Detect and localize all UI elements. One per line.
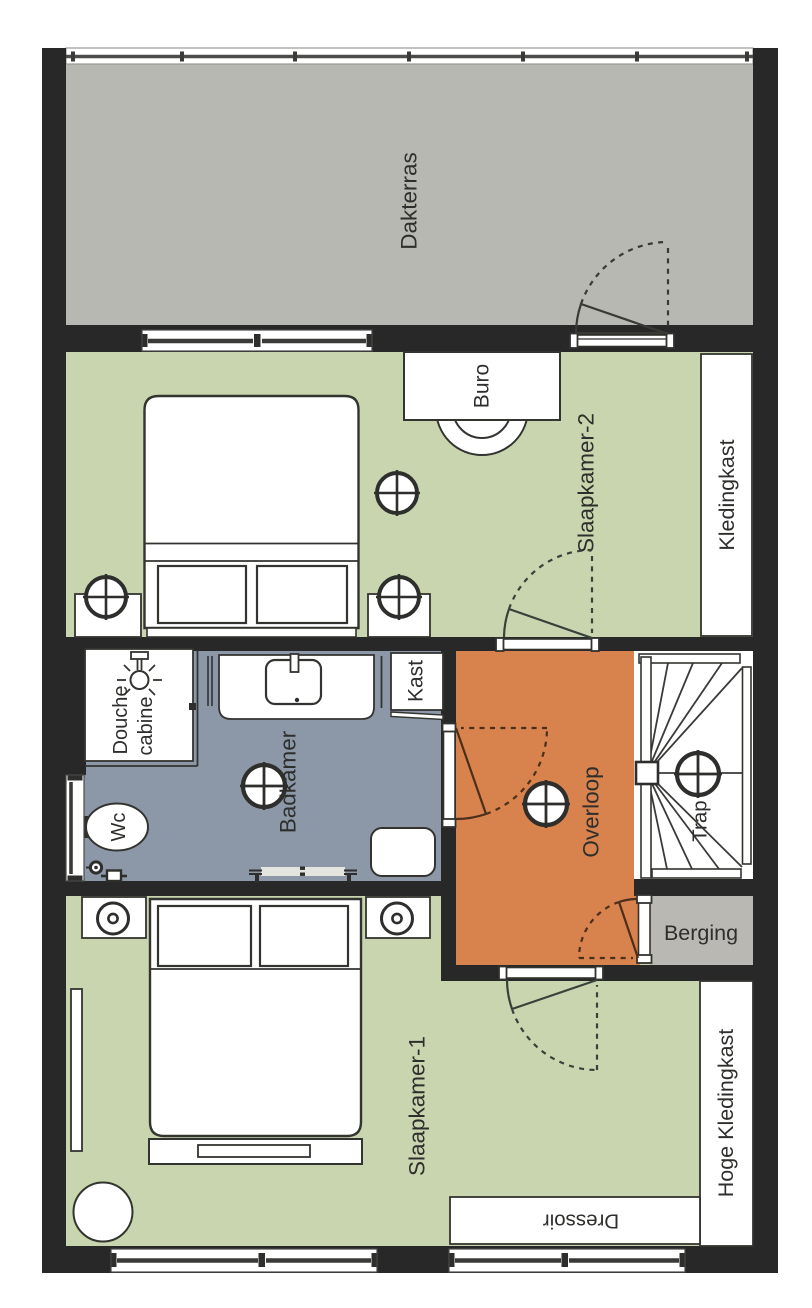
- svg-text:Dressoir: Dressoir: [543, 1210, 619, 1233]
- svg-text:Hoge Kledingkast: Hoge Kledingkast: [714, 1029, 738, 1198]
- svg-text:Slaapkamer-1: Slaapkamer-1: [405, 1036, 430, 1176]
- svg-text:Buro: Buro: [471, 364, 494, 408]
- svg-text:Berging: Berging: [664, 921, 738, 945]
- svg-text:Kledingkast: Kledingkast: [715, 439, 739, 550]
- svg-text:Douche: Douche: [110, 686, 132, 755]
- svg-text:Dakterras: Dakterras: [397, 152, 422, 250]
- svg-text:cabine: cabine: [135, 697, 157, 756]
- svg-text:Trap: Trap: [689, 800, 712, 841]
- svg-text:Slaapkamer-2: Slaapkamer-2: [574, 413, 599, 553]
- svg-text:Wc: Wc: [108, 813, 130, 842]
- svg-text:Overloop: Overloop: [579, 766, 604, 857]
- svg-text:Kast: Kast: [405, 660, 428, 702]
- svg-text:Badkamer: Badkamer: [276, 730, 301, 833]
